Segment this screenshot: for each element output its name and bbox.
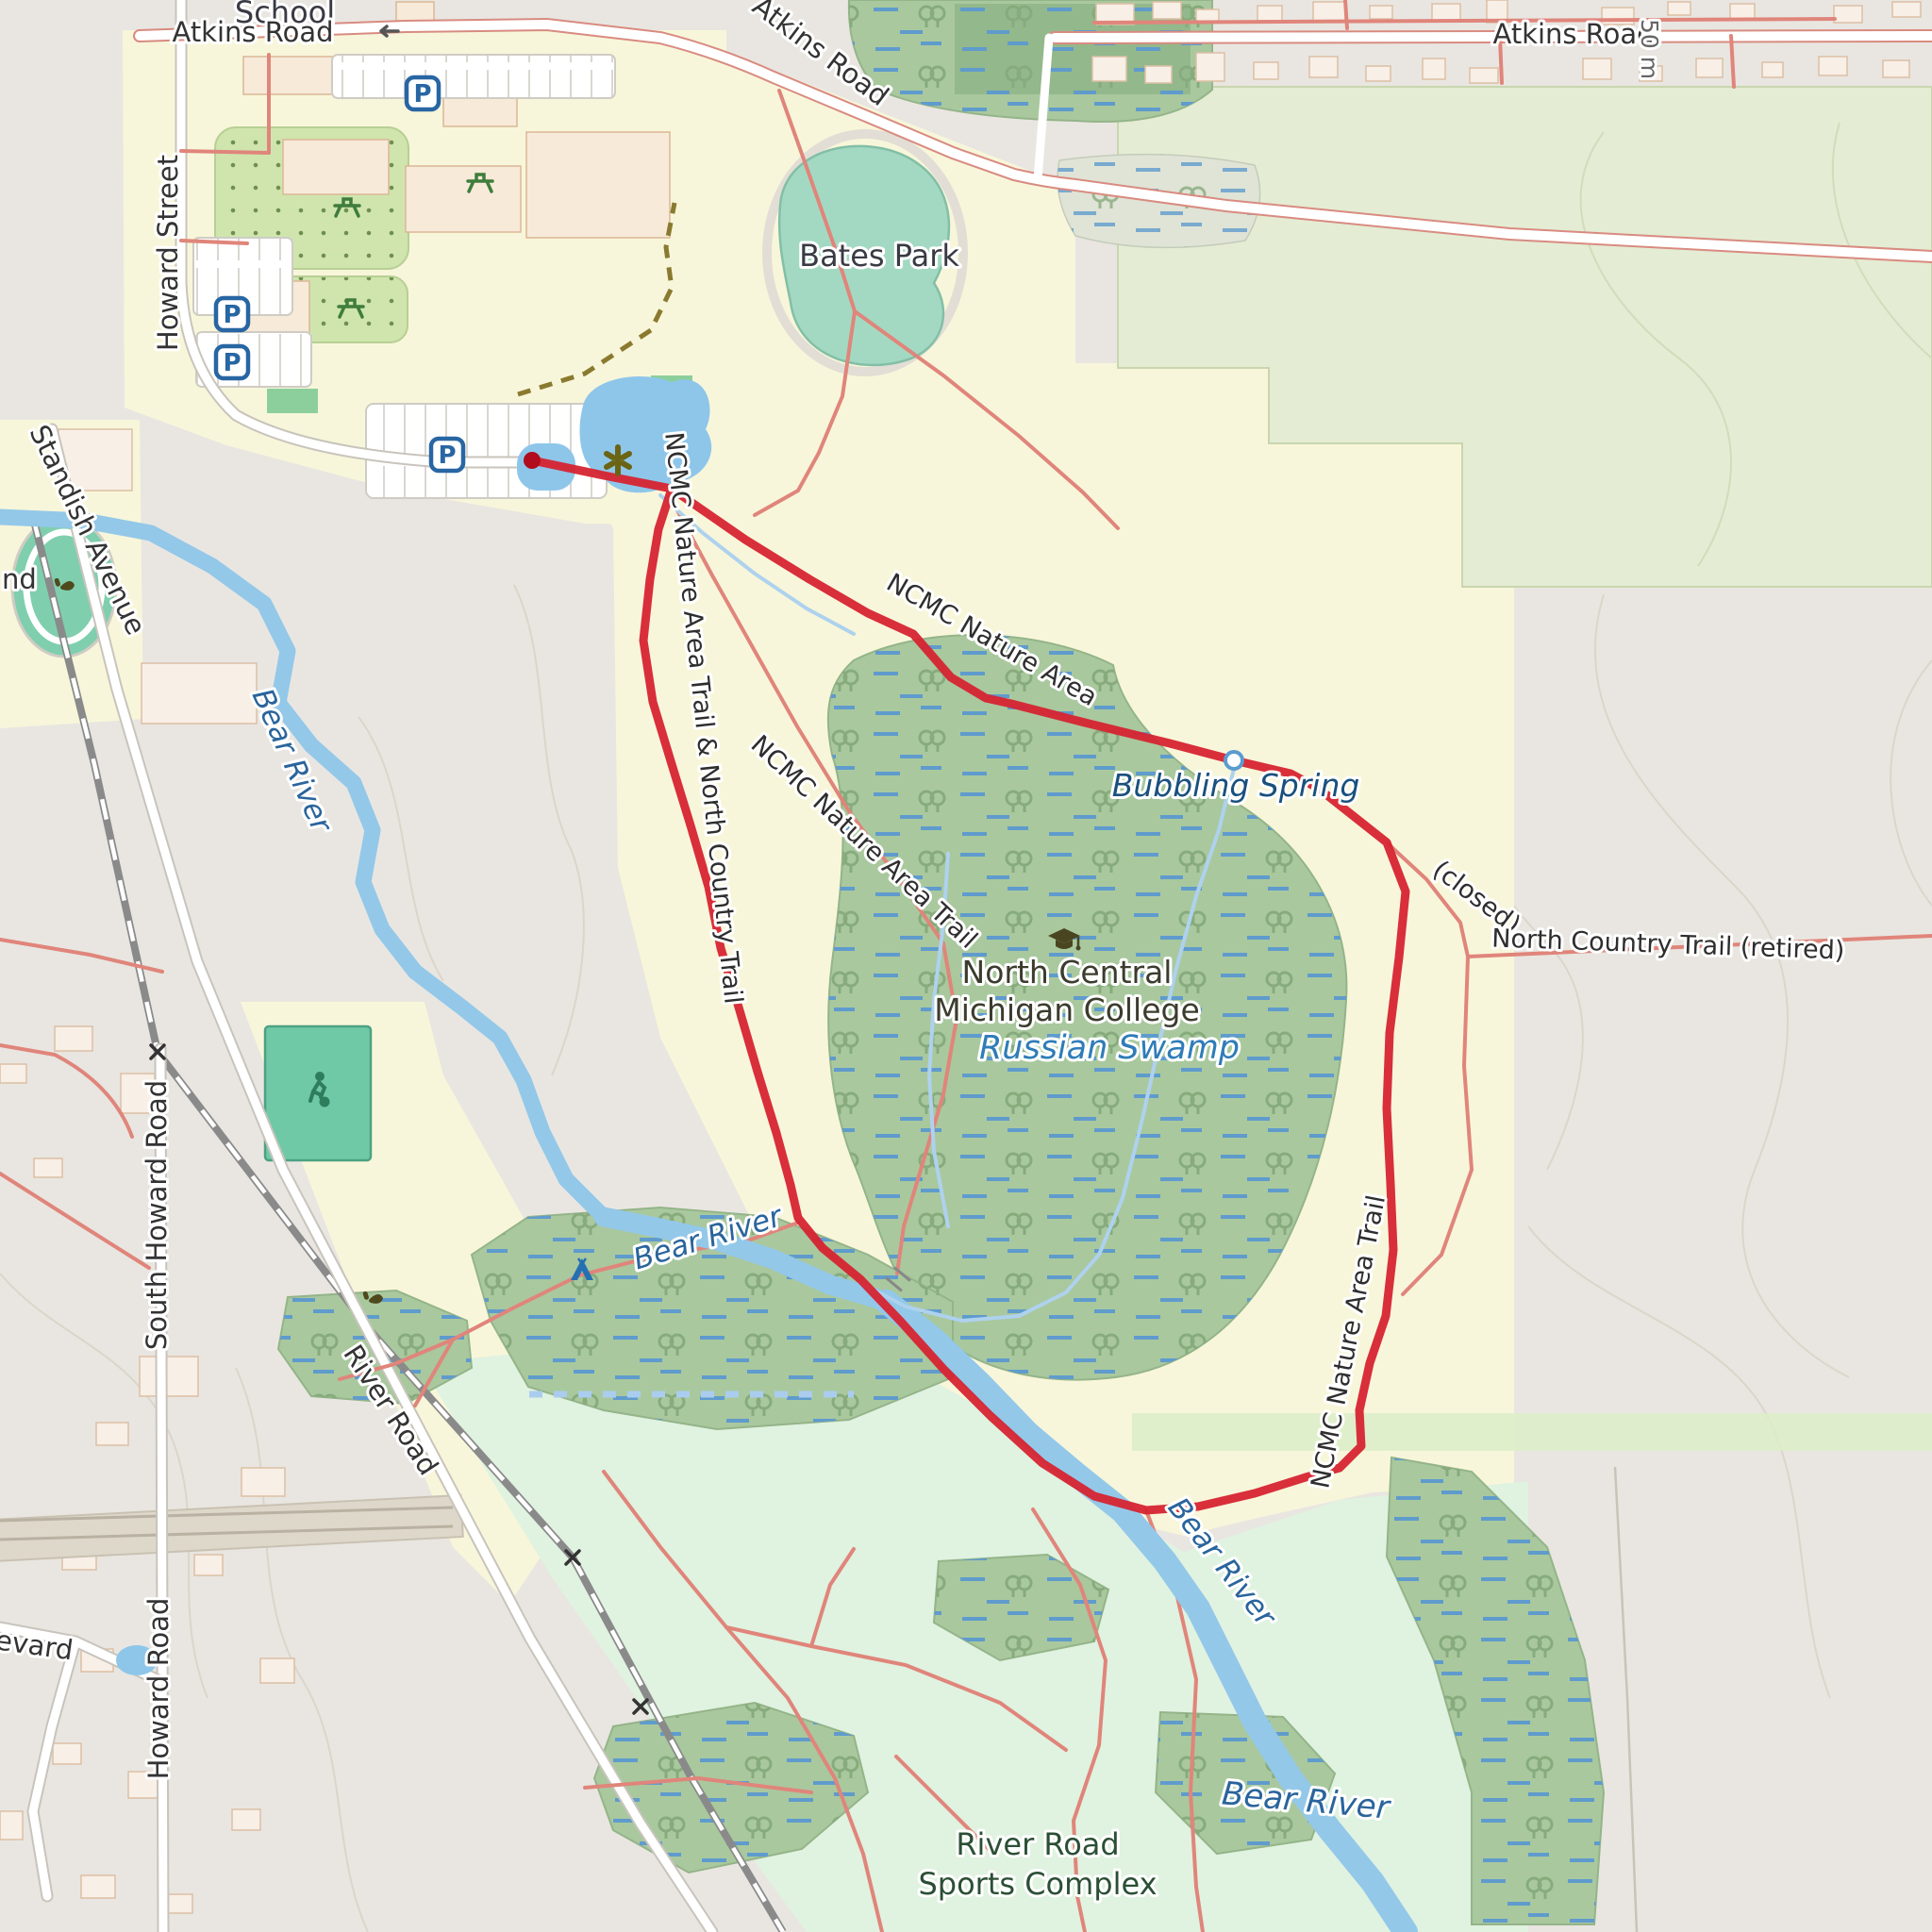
building (1883, 60, 1909, 77)
building (1313, 2, 1345, 21)
building (1819, 57, 1847, 75)
svg-text:P: P (413, 80, 431, 108)
parking-icon: P (216, 346, 248, 378)
building (34, 1158, 62, 1177)
building (283, 140, 389, 194)
building (232, 1809, 260, 1830)
building (1583, 58, 1611, 79)
building (396, 2, 434, 21)
label-howard-street: Howard Street (152, 155, 184, 351)
label-russian-swamp: Russian Swamp (979, 1029, 1240, 1067)
map-svg: PPPP (0, 0, 1932, 1932)
building (0, 1064, 26, 1083)
label-atkins-road-e: Atkins Road (1492, 18, 1654, 50)
label-sports-complex-line1: River Road (956, 1826, 1119, 1862)
map-canvas[interactable]: PPPP (0, 0, 1932, 1932)
building (526, 132, 670, 238)
building (53, 1743, 81, 1764)
building (1696, 58, 1723, 77)
parking-icon: P (431, 439, 463, 471)
building (406, 166, 521, 232)
label-atkins-road-w: Atkins Road (172, 16, 333, 48)
building (1309, 57, 1338, 77)
label-south-howard-road: South Howard Road (141, 1080, 173, 1350)
label-howard-road: Howard Road (142, 1598, 175, 1780)
svg-text:P: P (438, 441, 456, 470)
label-college-line1: North Central (962, 954, 1173, 991)
building (1762, 62, 1783, 77)
building (1370, 6, 1392, 19)
building (1892, 2, 1921, 17)
building (1470, 68, 1498, 83)
building (55, 1026, 92, 1051)
building (96, 1423, 128, 1445)
building (1153, 2, 1181, 19)
building (194, 1555, 223, 1575)
building (1432, 4, 1460, 21)
building (1730, 4, 1755, 19)
label-bates-park: Bates Park (799, 238, 959, 274)
building (241, 1468, 285, 1496)
building (260, 1658, 294, 1683)
label-sports-complex-line2: Sports Complex (918, 1866, 1157, 1902)
label-scale: 50 m (1636, 19, 1663, 79)
building (1196, 53, 1224, 81)
label-cutoff-nd: nd (2, 563, 37, 595)
building (140, 1357, 198, 1396)
building (1145, 66, 1172, 83)
building (1254, 62, 1278, 79)
label-college-line2: Michigan College (934, 991, 1200, 1028)
svg-text:P: P (223, 349, 241, 377)
building (1092, 57, 1126, 81)
label-bubbling-spring: Bubbling Spring (1112, 767, 1360, 804)
building (0, 1811, 23, 1840)
parking-icon: P (216, 298, 248, 330)
building (1423, 58, 1445, 79)
building (81, 1875, 115, 1898)
route-start-marker (524, 452, 541, 469)
building (1366, 66, 1391, 81)
building (1668, 2, 1690, 15)
parking-icon: P (407, 77, 439, 109)
svg-text:P: P (223, 301, 241, 329)
building (1257, 6, 1282, 21)
building (1834, 6, 1862, 23)
